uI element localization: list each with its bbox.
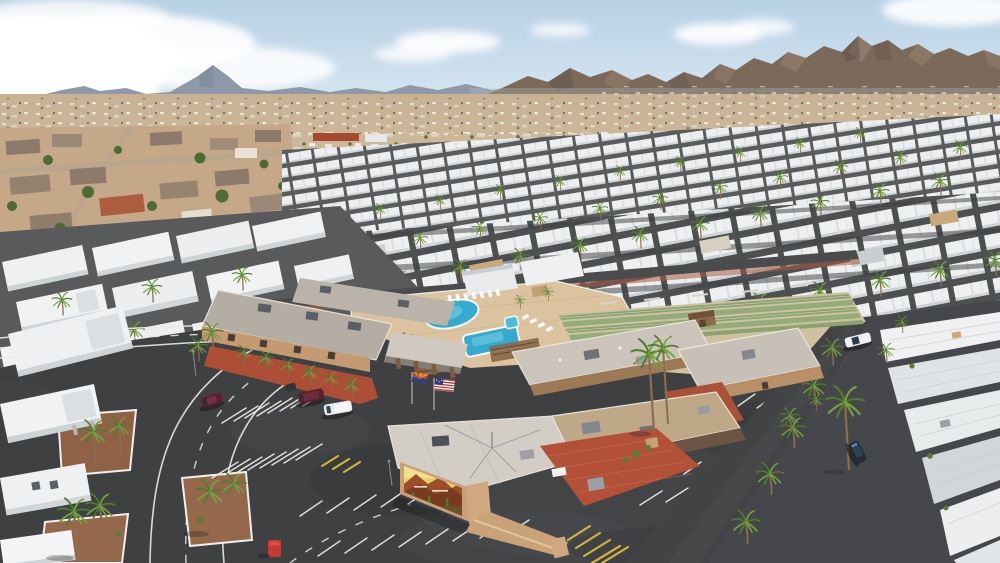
red-roof-strip-mall bbox=[313, 133, 359, 141]
roof-hatch bbox=[432, 435, 450, 446]
us-flag bbox=[434, 378, 455, 392]
arizona-flag bbox=[412, 372, 428, 384]
spa bbox=[504, 316, 519, 329]
aerial-photo-canvas bbox=[0, 0, 1000, 563]
aerial-photo bbox=[0, 0, 1000, 563]
